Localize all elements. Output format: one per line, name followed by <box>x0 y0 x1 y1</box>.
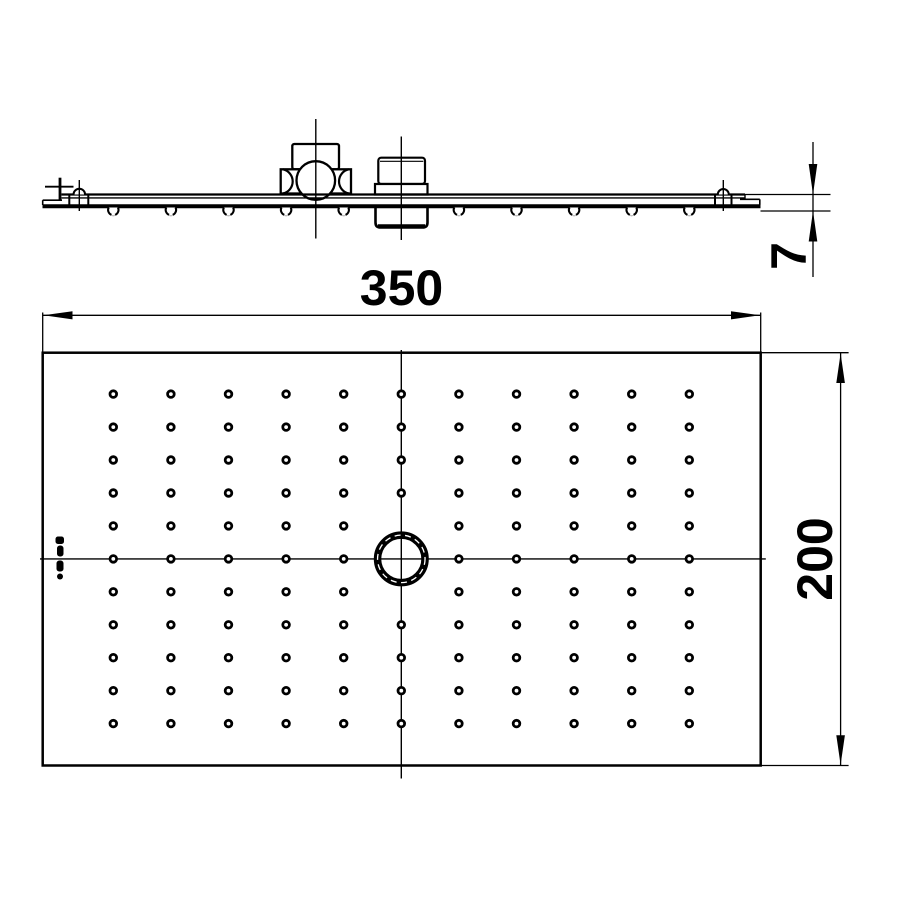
plan-view: 350 200 <box>40 260 849 779</box>
spray-nozzle-hole <box>571 490 578 497</box>
spray-nozzle-hole <box>225 687 232 694</box>
technical-drawing-canvas: 7 350 <box>0 0 900 900</box>
spray-nozzle-hole <box>513 457 520 464</box>
spray-nozzle-hole <box>225 589 232 596</box>
spray-nozzle-hole <box>456 720 463 727</box>
spray-nozzle-hole <box>168 622 175 629</box>
spray-nozzle-hole <box>340 391 347 398</box>
spray-nozzle-hole <box>168 556 175 563</box>
brand-mark-dot <box>57 574 63 580</box>
brand-mark-blob-1 <box>56 537 65 545</box>
spray-nozzle-hole <box>283 622 290 629</box>
spray-nozzle-hole <box>686 622 693 629</box>
width-dim-text: 350 <box>360 260 443 316</box>
spray-nozzle-hole <box>340 687 347 694</box>
spray-nozzle-hole <box>283 391 290 398</box>
spray-nozzle-hole <box>340 523 347 530</box>
spray-nozzle-hole <box>686 720 693 727</box>
spray-nozzle-hole <box>628 457 635 464</box>
spray-nozzle-hole <box>283 457 290 464</box>
spray-nozzle-hole <box>513 622 520 629</box>
spray-nozzle-hole <box>340 654 347 661</box>
spray-nozzle-hole <box>628 391 635 398</box>
brand-mark-blob-3 <box>57 561 64 572</box>
spray-nozzle-hole <box>571 391 578 398</box>
side-nozzle <box>454 208 464 216</box>
side-nozzle <box>108 208 118 216</box>
spray-nozzle-hole <box>110 687 117 694</box>
height-arrow-down <box>836 735 845 765</box>
spray-nozzle-hole <box>168 490 175 497</box>
spray-nozzle-hole <box>225 391 232 398</box>
spray-nozzle-hole <box>110 622 117 629</box>
spray-nozzle-hole <box>110 490 117 497</box>
spray-nozzle-hole <box>340 556 347 563</box>
spray-nozzle-hole <box>628 424 635 431</box>
spray-nozzle-hole <box>686 556 693 563</box>
spray-nozzle-hole <box>225 622 232 629</box>
spray-nozzle-hole <box>456 523 463 530</box>
spray-nozzle-hole <box>340 424 347 431</box>
spray-nozzle-hole <box>686 490 693 497</box>
brand-mark-blob-2 <box>57 546 64 557</box>
spray-nozzle-hole <box>398 687 405 694</box>
spray-nozzle-hole <box>398 720 405 727</box>
spray-nozzle-hole <box>225 424 232 431</box>
spray-nozzle-hole <box>571 720 578 727</box>
spray-nozzle-hole <box>456 654 463 661</box>
spray-nozzle-hole <box>340 622 347 629</box>
spray-nozzle-hole <box>513 687 520 694</box>
spray-nozzle-hole <box>398 622 405 629</box>
spray-nozzle-hole <box>686 391 693 398</box>
spray-nozzle-hole <box>513 556 520 563</box>
spray-nozzle-hole <box>340 490 347 497</box>
spray-nozzle-hole <box>398 457 405 464</box>
spray-nozzle-hole <box>571 687 578 694</box>
spray-nozzle-hole <box>283 490 290 497</box>
thickness-arrow-down <box>809 164 818 195</box>
spray-nozzle-hole <box>283 589 290 596</box>
spray-nozzle-hole <box>110 654 117 661</box>
thickness-dimension: 7 <box>745 142 831 277</box>
spray-nozzle-hole <box>110 523 117 530</box>
spray-nozzle-hole <box>513 720 520 727</box>
thickness-arrow-up <box>809 211 818 242</box>
spray-nozzle-hole <box>283 556 290 563</box>
spray-nozzle-hole <box>340 720 347 727</box>
spray-nozzle-hole <box>571 589 578 596</box>
spray-nozzle-hole <box>168 687 175 694</box>
spray-nozzle-hole <box>168 424 175 431</box>
side-nozzle <box>338 208 348 216</box>
height-arrow-up <box>836 354 845 384</box>
spray-nozzle-hole <box>571 424 578 431</box>
spray-nozzle-hole <box>398 424 405 431</box>
side-nozzle <box>569 208 579 216</box>
spray-nozzle-hole <box>168 589 175 596</box>
width-dimension: 350 <box>43 260 761 353</box>
side-nozzle <box>511 208 521 216</box>
spray-nozzle-hole <box>571 556 578 563</box>
spray-nozzle-hole <box>628 687 635 694</box>
spray-nozzle-hole <box>225 654 232 661</box>
spray-nozzle-hole <box>686 589 693 596</box>
spray-nozzle-hole <box>456 457 463 464</box>
spray-nozzle-hole <box>686 457 693 464</box>
width-arrow-right <box>731 311 760 319</box>
spray-nozzle-hole <box>571 523 578 530</box>
brand-mark <box>56 537 65 580</box>
spray-nozzle-hole <box>456 687 463 694</box>
spray-nozzle-hole <box>340 457 347 464</box>
spray-nozzle-hole <box>513 523 520 530</box>
spray-nozzle-hole <box>628 654 635 661</box>
side-nozzle <box>281 208 291 216</box>
spray-nozzle-hole <box>398 654 405 661</box>
thickness-dim-text: 7 <box>761 242 817 270</box>
width-arrow-left <box>44 311 73 319</box>
spray-nozzle-hole <box>110 720 117 727</box>
spray-nozzle-hole <box>513 589 520 596</box>
spray-nozzle-hole <box>225 523 232 530</box>
spray-nozzle-hole <box>456 556 463 563</box>
spray-nozzle-hole <box>628 589 635 596</box>
spray-nozzle-hole <box>340 589 347 596</box>
spray-nozzle-hole <box>110 556 117 563</box>
spray-nozzle-hole <box>168 654 175 661</box>
spray-nozzle-hole <box>628 523 635 530</box>
spray-nozzle-hole <box>283 424 290 431</box>
spray-nozzle-hole <box>571 654 578 661</box>
side-nozzle <box>223 208 233 216</box>
spray-nozzle-hole <box>628 490 635 497</box>
side-view: 7 <box>43 119 831 277</box>
spray-nozzle-hole <box>456 424 463 431</box>
spray-nozzle-hole <box>513 391 520 398</box>
spray-nozzle-hole <box>168 391 175 398</box>
spray-nozzle-hole <box>456 622 463 629</box>
spray-nozzle-hole <box>168 523 175 530</box>
spray-nozzle-hole <box>628 720 635 727</box>
spray-nozzle-hole <box>398 490 405 497</box>
spray-nozzle-hole <box>225 720 232 727</box>
spray-nozzle-hole <box>456 589 463 596</box>
spray-nozzle-hole <box>513 490 520 497</box>
spray-nozzle-hole <box>283 523 290 530</box>
spray-nozzle-hole <box>225 556 232 563</box>
side-nozzle <box>166 208 176 216</box>
spray-nozzle-hole <box>225 490 232 497</box>
spray-nozzle-hole <box>513 424 520 431</box>
spray-nozzle-hole <box>513 654 520 661</box>
spray-nozzle-hole <box>110 424 117 431</box>
spray-nozzle-hole <box>168 457 175 464</box>
side-nozzle <box>684 208 694 216</box>
spray-nozzle-hole <box>571 457 578 464</box>
height-dimension: 200 <box>761 353 849 766</box>
spray-nozzle-hole <box>628 622 635 629</box>
spray-nozzle-hole <box>110 457 117 464</box>
height-dim-text: 200 <box>787 517 843 600</box>
spray-nozzle-hole <box>456 391 463 398</box>
spray-nozzle-hole <box>686 654 693 661</box>
spray-nozzle-hole <box>686 523 693 530</box>
spray-nozzle-hole <box>283 654 290 661</box>
spray-nozzle-hole <box>686 424 693 431</box>
spray-nozzle-hole <box>110 589 117 596</box>
spray-nozzle-hole <box>283 720 290 727</box>
spray-nozzle-hole <box>110 391 117 398</box>
spray-nozzle-hole <box>456 490 463 497</box>
spray-nozzle-hole <box>283 687 290 694</box>
spray-nozzle-hole <box>686 687 693 694</box>
spray-nozzle-hole <box>571 622 578 629</box>
side-nozzle <box>627 208 637 216</box>
spray-nozzle-hole <box>225 457 232 464</box>
spray-nozzle-hole <box>628 556 635 563</box>
spray-nozzle-hole <box>168 720 175 727</box>
spray-nozzle-hole <box>398 391 405 398</box>
